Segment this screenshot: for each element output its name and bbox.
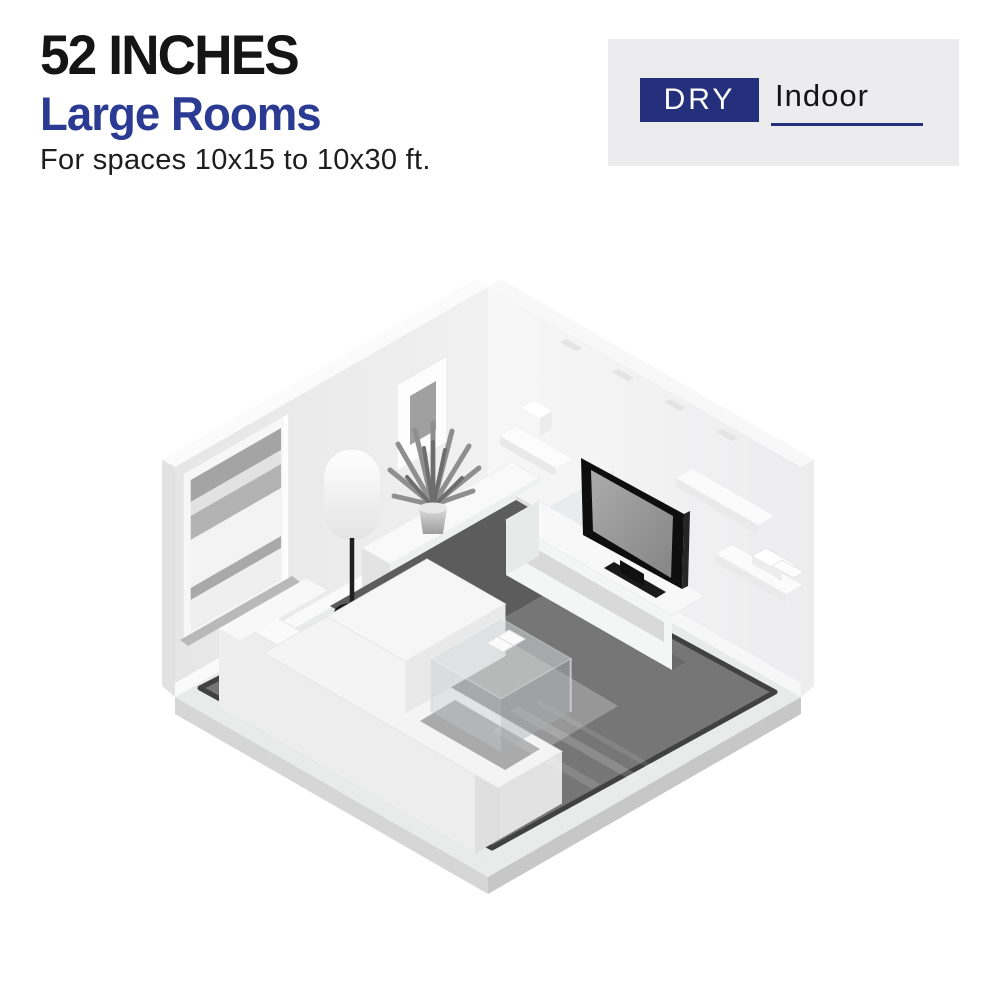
window-jamb-highlight [283, 414, 288, 587]
plant-pot-rim [419, 503, 447, 514]
sofa-arm-back [219, 629, 240, 719]
right-wall-end-cap [801, 460, 814, 698]
lamp-shade [324, 450, 380, 540]
left-wall-end-cap [162, 460, 175, 698]
product-infographic: 52 INCHES Large Rooms For spaces 10x15 t… [0, 0, 1000, 1000]
room-illustration [0, 0, 1000, 1000]
